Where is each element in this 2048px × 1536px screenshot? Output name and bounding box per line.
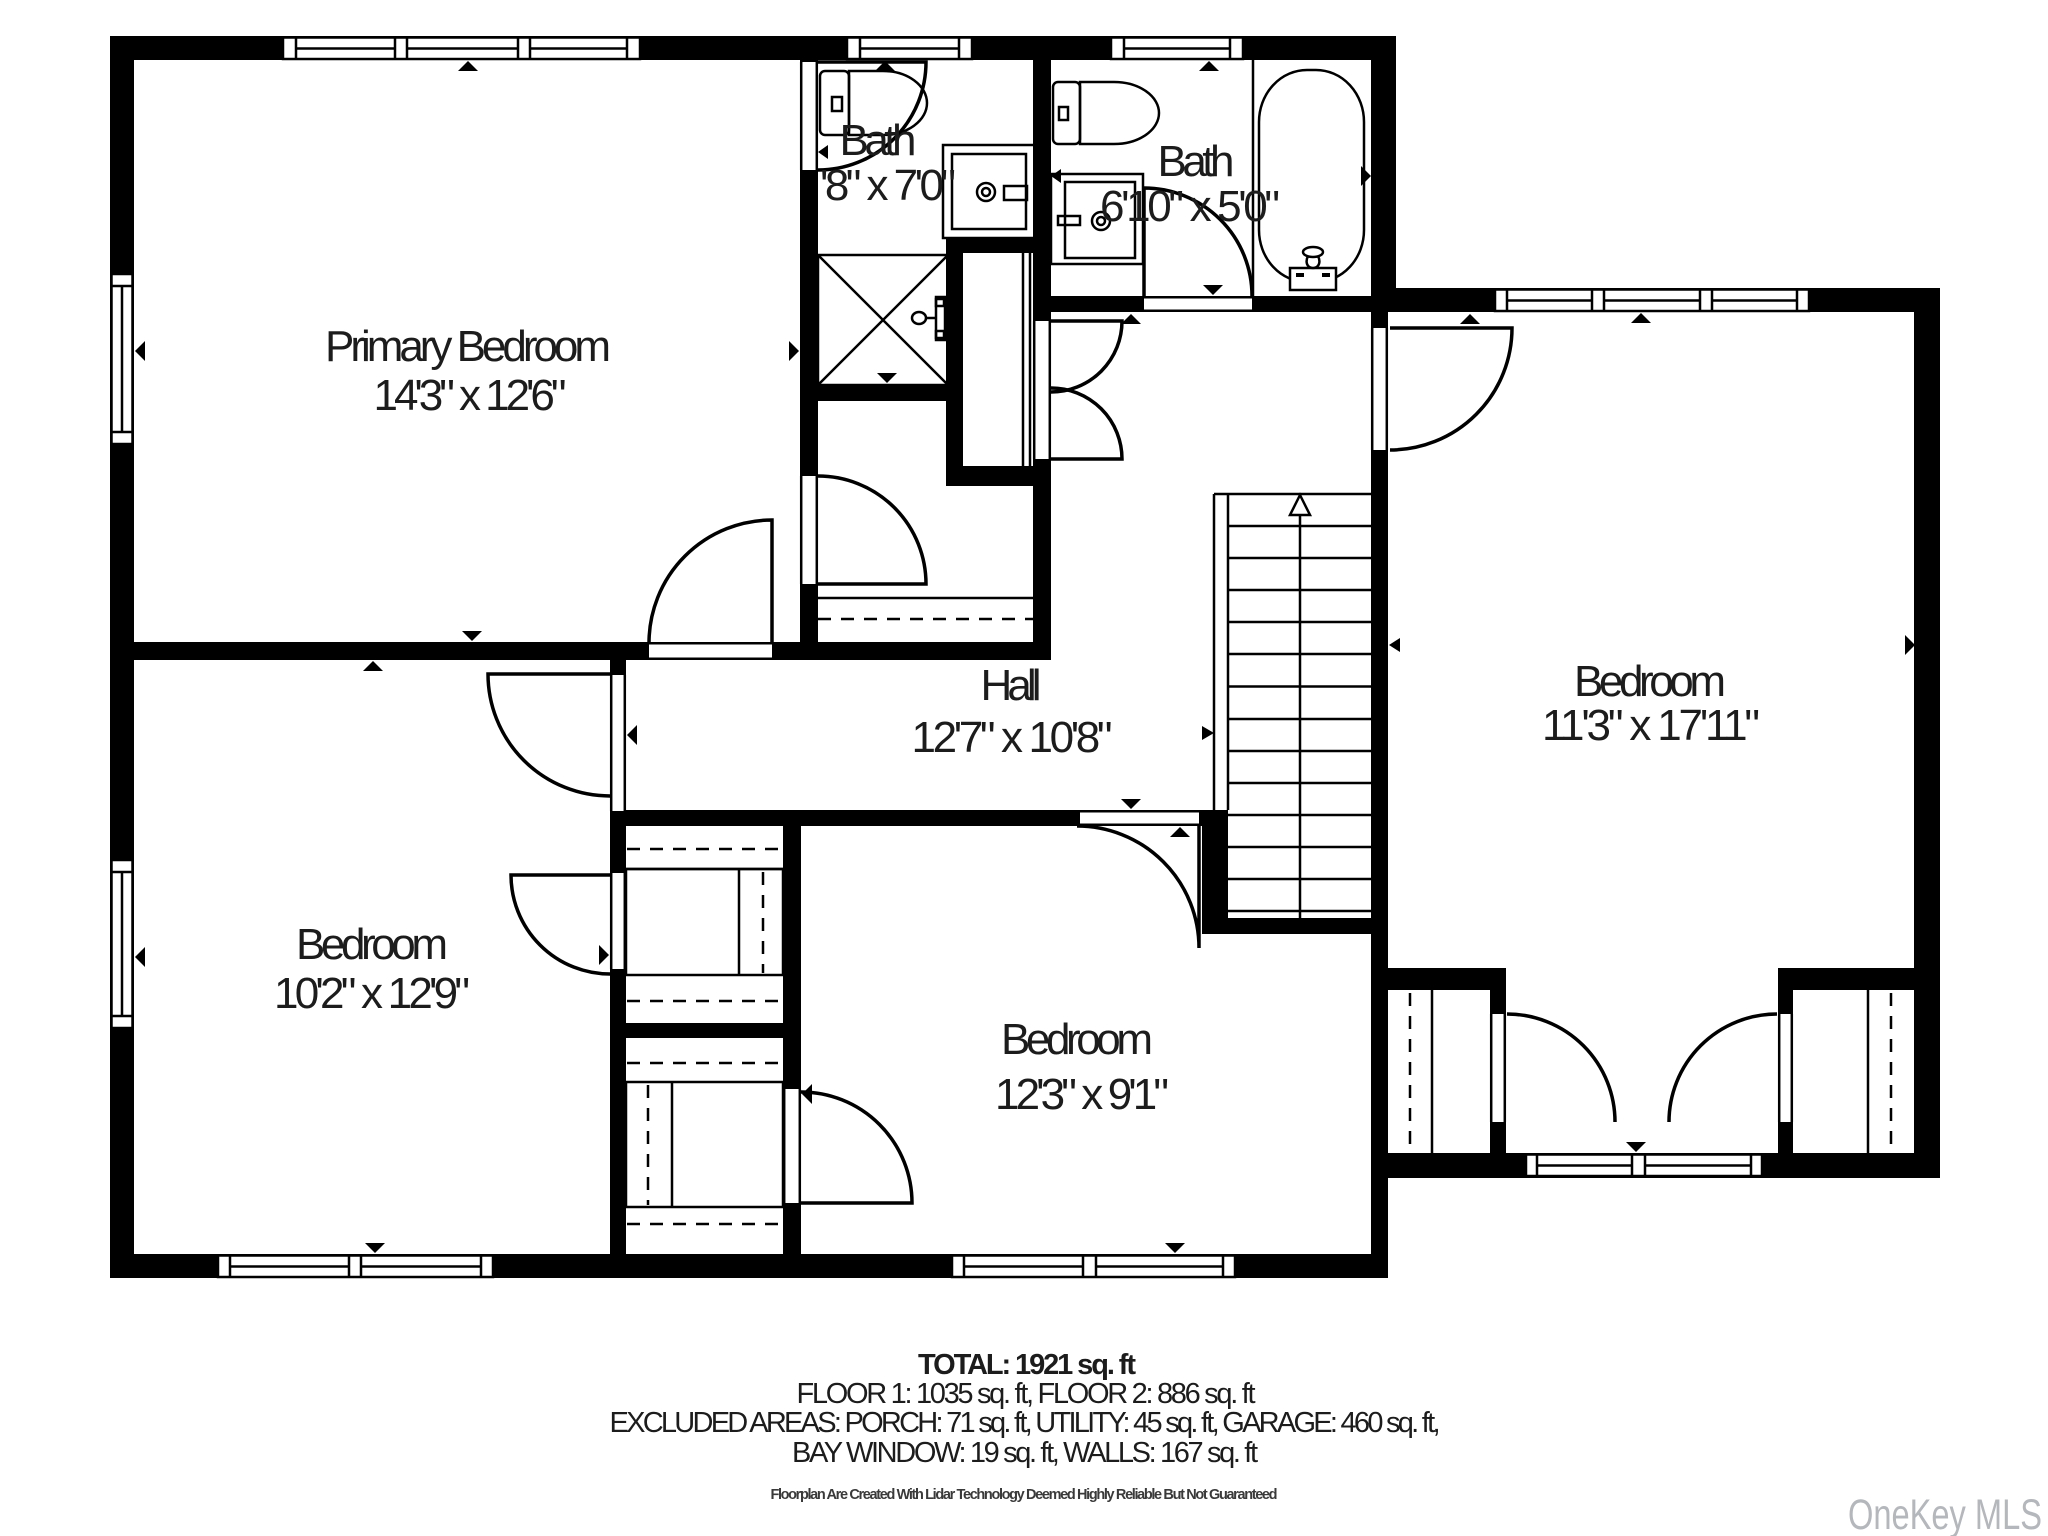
svg-text:TOTAL: 1921 sq. ft: TOTAL: 1921 sq. ft [918,1349,1136,1381]
svg-text:'8" x 7'0": '8" x 7'0" [820,161,956,210]
svg-text:Floorplan Are Created With Lid: Floorplan Are Created With Lidar Technol… [771,1487,1278,1503]
svg-text:Bedroom: Bedroom [296,920,448,969]
svg-text:Hall: Hall [981,661,1042,710]
svg-text:BAY WINDOW: 19 sq. ft, WALLS:: BAY WINDOW: 19 sq. ft, WALLS: 167 sq. ft [792,1437,1258,1469]
svg-text:Primary Bedroom: Primary Bedroom [325,322,611,371]
svg-text:OneKey MLS: OneKey MLS [1848,1491,2042,1536]
svg-text:Bedroom: Bedroom [1574,657,1726,706]
svg-text:EXCLUDED AREAS: PORCH: 71 sq.: EXCLUDED AREAS: PORCH: 71 sq. ft, UTILIT… [610,1407,1441,1439]
svg-text:10'2" x 12'9": 10'2" x 12'9" [274,969,470,1018]
svg-text:12'7" x 10'8": 12'7" x 10'8" [912,713,1113,762]
svg-text:14'3" x 12'6": 14'3" x 12'6" [374,371,567,420]
svg-text:11'3" x 17'11": 11'3" x 17'11" [1542,701,1760,750]
svg-text:Bedroom: Bedroom [1001,1015,1153,1064]
svg-text:Bath: Bath [840,116,917,165]
svg-text:6'10" x 5'0": 6'10" x 5'0" [1100,182,1280,231]
svg-text:Bath: Bath [1158,137,1235,186]
svg-text:12'3" x 9'1": 12'3" x 9'1" [995,1070,1169,1119]
svg-text:FLOOR 1: 1035 sq. ft, FLOOR 2:: FLOOR 1: 1035 sq. ft, FLOOR 2: 886 sq. f… [797,1378,1256,1410]
